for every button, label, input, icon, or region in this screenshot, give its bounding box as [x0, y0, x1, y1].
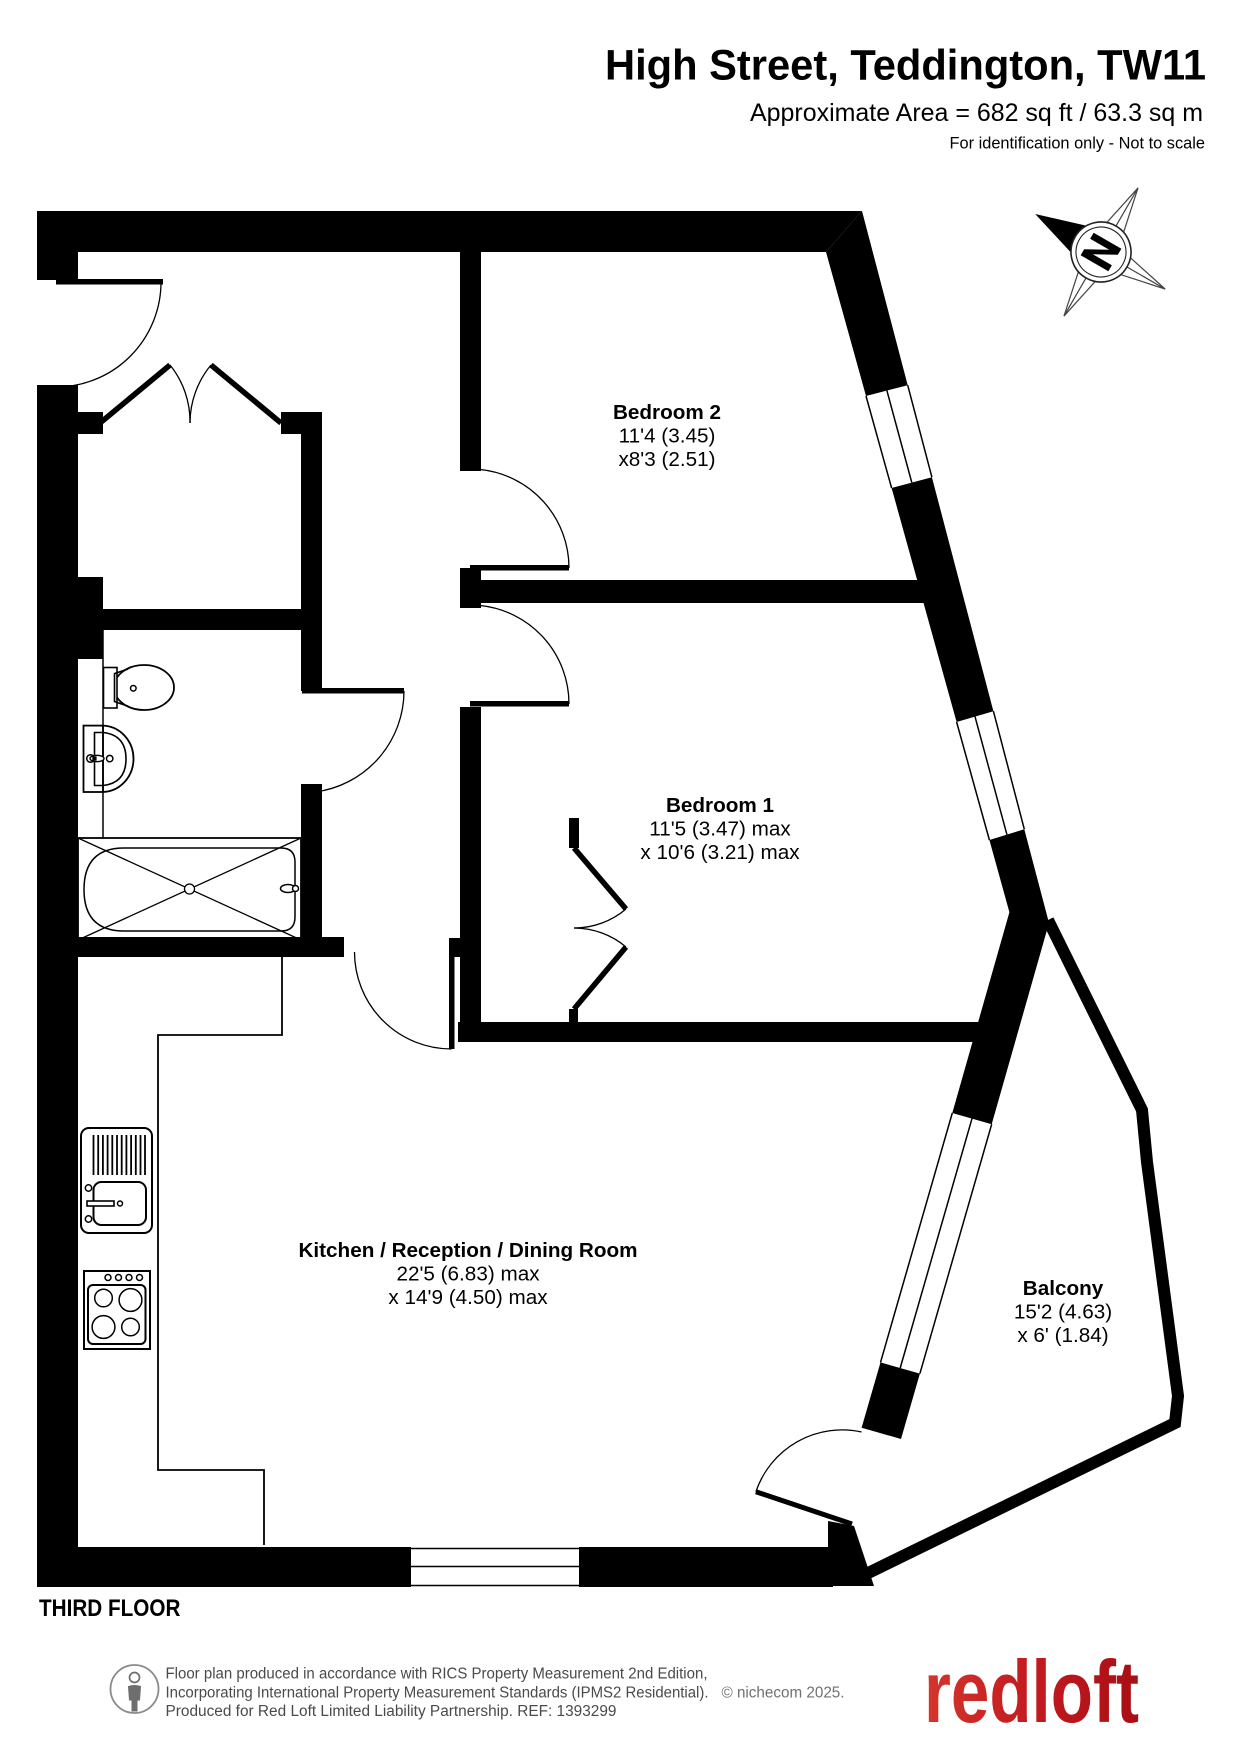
svg-text:Produced for Red Loft Limited: Produced for Red Loft Limited Liability …: [166, 1703, 617, 1720]
svg-text:x 6' (1.84): x 6' (1.84): [1017, 1324, 1108, 1347]
svg-text:For identification only - Not: For identification only - Not to scale: [950, 134, 1206, 153]
svg-text:11'4 (3.45): 11'4 (3.45): [619, 425, 716, 448]
svg-text:x 10'6 (3.21) max: x 10'6 (3.21) max: [640, 841, 800, 864]
svg-text:Balcony: Balcony: [1023, 1277, 1104, 1300]
svg-text:THIRD FLOOR: THIRD FLOOR: [39, 1595, 180, 1622]
svg-text:© nichecom 2025.: © nichecom 2025.: [722, 1685, 845, 1702]
svg-text:Bedroom 2: Bedroom 2: [613, 401, 721, 424]
svg-text:redloft: redloft: [924, 1642, 1139, 1741]
svg-text:22'5 (6.83) max: 22'5 (6.83) max: [396, 1263, 540, 1286]
svg-text:Incorporating International Pr: Incorporating International Property Mea…: [166, 1685, 709, 1702]
svg-text:Bedroom 1: Bedroom 1: [666, 794, 774, 817]
svg-text:15'2 (4.63): 15'2 (4.63): [1014, 1301, 1112, 1324]
svg-text:Floor plan produced in accorda: Floor plan produced in accordance with R…: [166, 1666, 708, 1683]
svg-text:x 14'9 (4.50) max: x 14'9 (4.50) max: [388, 1286, 548, 1309]
svg-text:High Street, Teddington, TW11: High Street, Teddington, TW11: [605, 41, 1206, 89]
svg-text:x8'3 (2.51): x8'3 (2.51): [618, 448, 715, 471]
svg-text:Approximate Area = 682 sq ft /: Approximate Area = 682 sq ft / 63.3 sq m: [750, 99, 1203, 127]
svg-text:11'5 (3.47) max: 11'5 (3.47) max: [649, 818, 791, 841]
svg-text:Kitchen / Reception / Dining R: Kitchen / Reception / Dining Room: [298, 1239, 637, 1262]
